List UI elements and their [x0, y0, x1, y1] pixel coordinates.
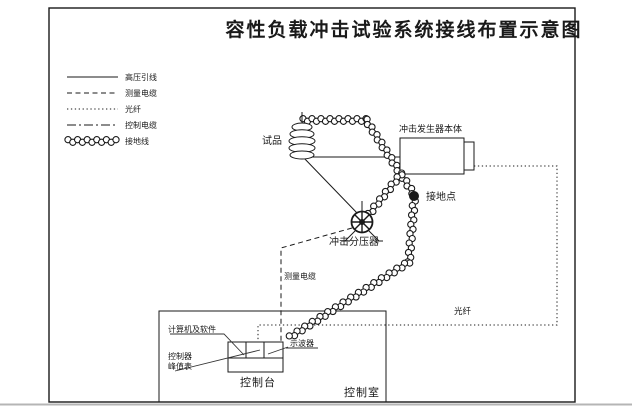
impulse-divider-label: 冲击分压器	[329, 235, 379, 248]
control-room-label: 控制室	[344, 385, 380, 399]
ground-point-label: 接地点	[426, 190, 456, 203]
oscilloscope-label: 示波器	[290, 338, 314, 348]
diagram-canvas: 容性负载冲击试验系统接线布置示意图 高压引线 测量电缆 光纤 控制电缆 接地线	[0, 0, 632, 410]
controller-label: 控制器	[168, 351, 192, 361]
test-object-label: 试品	[262, 134, 282, 147]
optical-fiber-label: 光纤	[454, 306, 472, 317]
computer-software-label: 计算机及软件	[168, 324, 216, 334]
legend-label-measuring-cable: 测量电缆	[125, 88, 157, 98]
ground-braid-top-links	[300, 116, 369, 125]
ground-braid-down-links	[405, 198, 419, 265]
peak-meter-label: 峰值表	[168, 361, 192, 371]
diagram-title: 容性负载冲击试验系统接线布置示意图	[225, 18, 582, 41]
test-object-ring	[290, 151, 314, 159]
impulse-generator-body	[400, 138, 474, 174]
ground-point-dot	[409, 191, 419, 201]
impulse-generator-label: 冲击发生器本体	[399, 123, 462, 135]
legend: 高压引线 测量电缆 光纤 控制电缆 接地线	[65, 72, 157, 146]
generator-cap-rect	[464, 142, 474, 170]
legend-label-control-cable: 控制电缆	[125, 120, 157, 130]
legend-label-ground-wire: 接地线	[125, 136, 149, 146]
divider-hub	[359, 219, 365, 225]
legend-line-ground-braid-links	[65, 137, 119, 146]
legend-label-fiber: 光纤	[125, 104, 141, 114]
legend-label-hv-lead: 高压引线	[125, 72, 157, 82]
generator-main-rect	[400, 138, 464, 174]
hv-lead-testobject-divider	[303, 157, 358, 214]
measuring-cable-label: 测量电缆	[284, 271, 316, 281]
control-console-label: 控制台	[240, 375, 276, 389]
schematic-figure: 容性负载冲击试验系统接线布置示意图 高压引线 测量电缆 光纤 控制电缆 接地线	[0, 0, 632, 410]
